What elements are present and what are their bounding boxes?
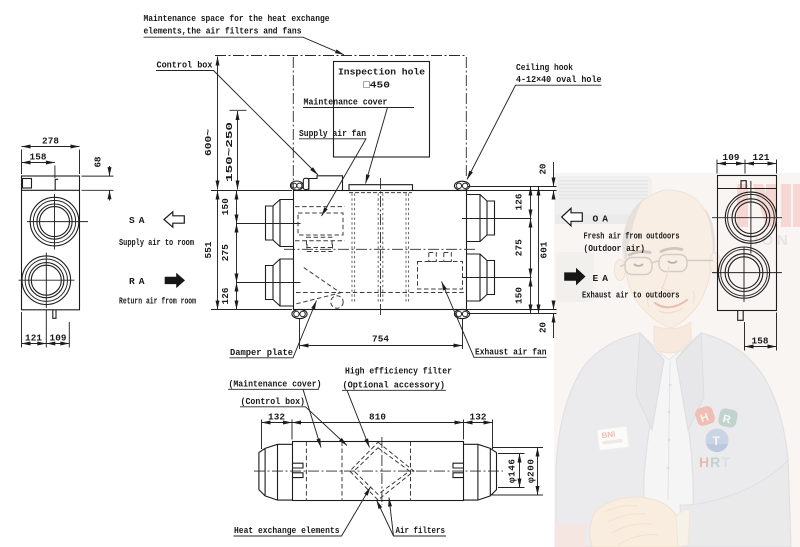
- svg-text:150~250: 150~250: [224, 121, 235, 182]
- svg-text:Fresh air from outdoors: Fresh air from outdoors: [584, 230, 680, 241]
- svg-text:132: 132: [470, 411, 487, 422]
- svg-text:Supply air to room: Supply air to room: [119, 237, 194, 248]
- svg-text:601: 601: [539, 241, 550, 258]
- svg-text:Supply air fan: Supply air fan: [299, 128, 366, 139]
- svg-text:High efficiency filter: High efficiency filter: [345, 366, 452, 377]
- svg-text:Damper plate: Damper plate: [230, 347, 293, 358]
- svg-text:Maintenance space for the heat: Maintenance space for the heat exchange: [144, 13, 330, 24]
- svg-text:Maintenance cover: Maintenance cover: [304, 97, 388, 108]
- svg-text:EA: EA: [593, 273, 613, 284]
- svg-text:4-12×40 oval hole: 4-12×40 oval hole: [516, 74, 602, 85]
- svg-text:278: 278: [42, 136, 59, 147]
- svg-text:φ146: φ146: [507, 459, 518, 483]
- svg-text:(Maintenance cover): (Maintenance cover): [229, 379, 322, 390]
- svg-text:Air filters: Air filters: [396, 525, 446, 536]
- svg-text:Ceiling hook: Ceiling hook: [516, 62, 573, 73]
- svg-text:810: 810: [369, 411, 386, 422]
- svg-text:(Optional accessory): (Optional accessory): [343, 380, 446, 391]
- svg-text:(Control box): (Control box): [241, 396, 306, 407]
- svg-text:Exhaust air fan: Exhaust air fan: [475, 347, 547, 358]
- svg-text:600~: 600~: [203, 129, 214, 156]
- svg-text:126: 126: [514, 193, 525, 210]
- svg-text:551: 551: [203, 241, 214, 258]
- svg-text:132: 132: [268, 411, 285, 422]
- svg-text:elements,the air filters and f: elements,the air filters and fans: [144, 26, 302, 37]
- svg-text:121: 121: [753, 152, 770, 163]
- svg-text:126: 126: [220, 287, 231, 304]
- svg-text:121: 121: [25, 333, 42, 344]
- svg-text:□450: □450: [363, 80, 390, 91]
- svg-text:150: 150: [514, 287, 525, 304]
- svg-text:Control box: Control box: [157, 60, 213, 71]
- svg-text:OA: OA: [593, 214, 613, 225]
- svg-text:275: 275: [514, 239, 525, 256]
- svg-text:φ200: φ200: [526, 459, 537, 483]
- svg-text:158: 158: [30, 152, 47, 163]
- svg-text:(Outdoor air): (Outdoor air): [584, 243, 646, 254]
- svg-text:Inspection hole: Inspection hole: [338, 67, 425, 78]
- svg-text:SA: SA: [129, 215, 149, 226]
- svg-text:20: 20: [538, 163, 549, 174]
- svg-text:275: 275: [220, 244, 231, 261]
- svg-text:109: 109: [50, 333, 67, 344]
- svg-text:Return air from room: Return air from room: [119, 296, 196, 307]
- svg-text:68: 68: [93, 156, 104, 167]
- svg-text:109: 109: [723, 152, 740, 163]
- svg-text:754: 754: [372, 334, 389, 345]
- svg-text:20: 20: [538, 322, 549, 333]
- svg-text:158: 158: [752, 336, 769, 347]
- svg-text:RA: RA: [129, 276, 149, 287]
- svg-text:150: 150: [220, 198, 231, 215]
- svg-text:Heat exchange elements: Heat exchange elements: [234, 525, 340, 536]
- svg-text:Exhaust air to outdoors: Exhaust air to outdoors: [582, 289, 680, 300]
